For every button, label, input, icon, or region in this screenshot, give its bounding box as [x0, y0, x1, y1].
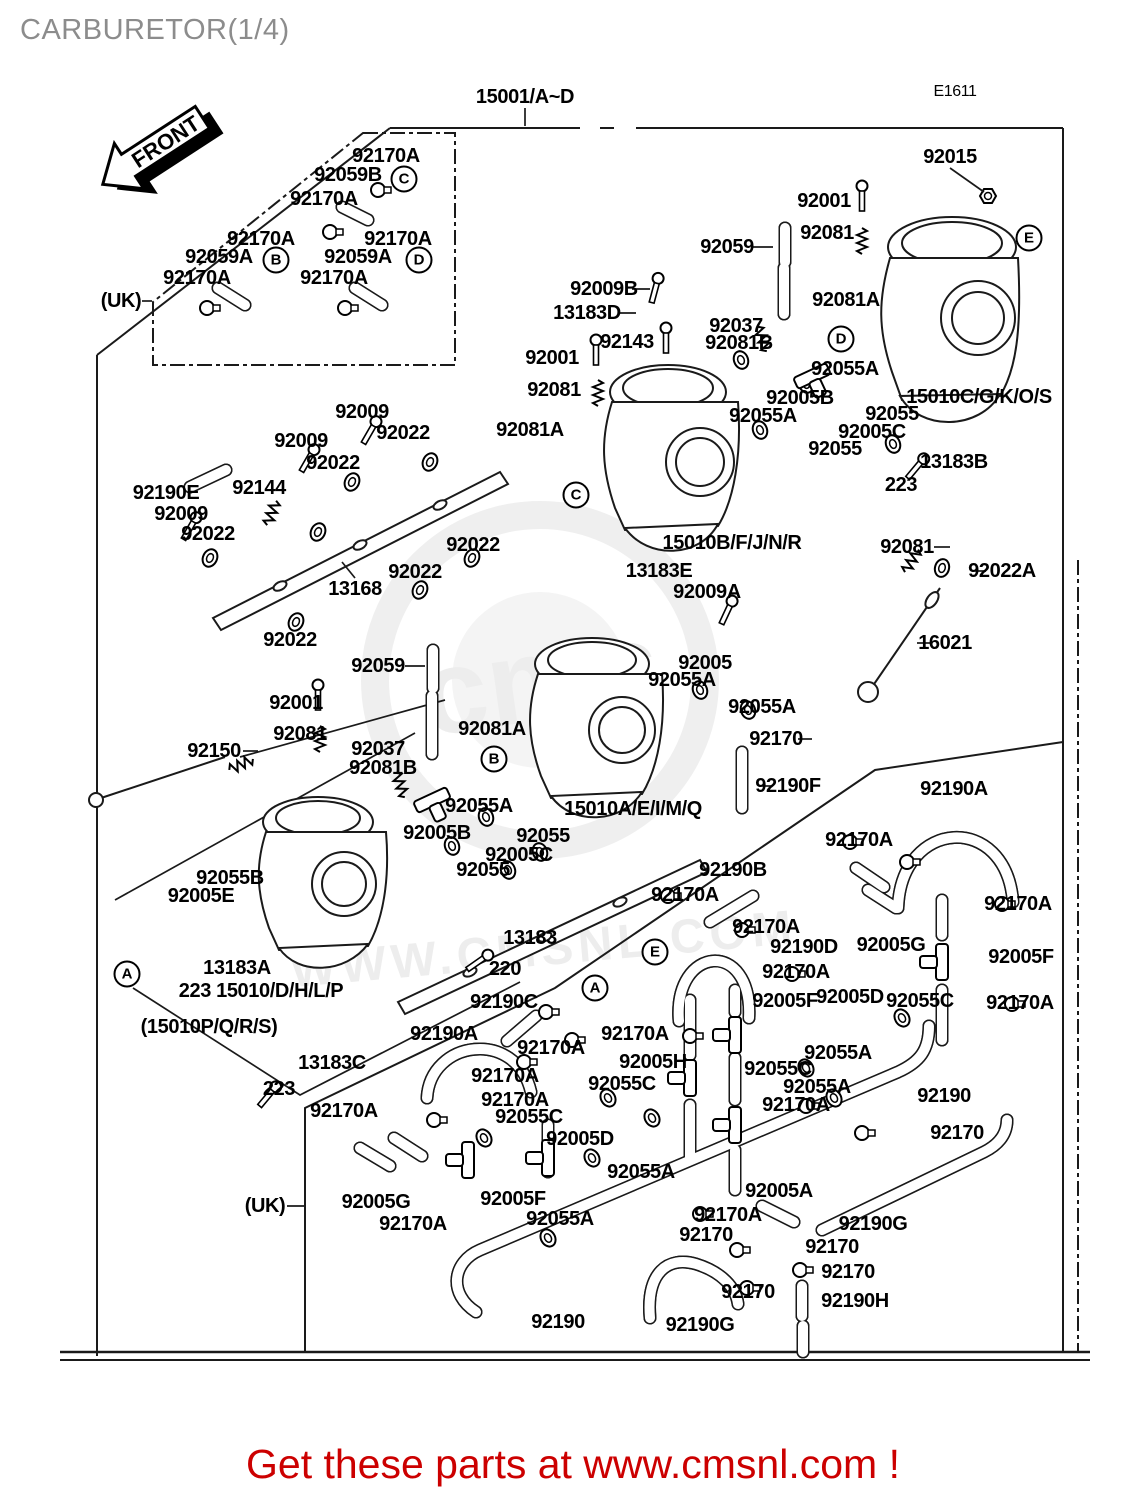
- part-number-label: 13168: [328, 579, 382, 599]
- callout-circle-C: C: [391, 166, 418, 193]
- part-number-label: 92190B: [699, 860, 767, 880]
- part-number-label: 92005H: [619, 1052, 687, 1072]
- part-number-label: 15010C/G/K/O/S: [906, 387, 1052, 407]
- diagram-canvas: cms WWW.CMSNL.COM: [0, 0, 1146, 1500]
- part-number-label: 92059: [700, 237, 754, 257]
- part-number-label: 92022: [388, 562, 442, 582]
- part-number-label: 92081A: [496, 420, 564, 440]
- part-number-label: 92170A: [352, 146, 420, 166]
- part-number-label: 92055C: [886, 991, 954, 1011]
- part-number-label: 92009: [335, 402, 389, 422]
- part-number-label: 13183C: [298, 1053, 366, 1073]
- part-number-label: 92170A: [762, 962, 830, 982]
- part-number-label: 92055C: [495, 1107, 563, 1127]
- part-number-label: 92055: [808, 439, 862, 459]
- part-number-label: 92055A: [804, 1043, 872, 1063]
- callout-circle-A: A: [582, 975, 609, 1002]
- callout-circle-C: C: [563, 482, 590, 509]
- part-number-label: 92170: [721, 1282, 775, 1302]
- part-number-label: 92170A: [984, 894, 1052, 914]
- part-number-label: 92170A: [762, 1095, 830, 1115]
- part-number-label: 92055A: [729, 406, 797, 426]
- part-number-label: 92001: [269, 693, 323, 713]
- part-number-label: 92170A: [732, 917, 800, 937]
- part-number-label: 92055A: [728, 697, 796, 717]
- part-number-label: 92170A: [601, 1024, 669, 1044]
- part-number-label: 92190C: [470, 992, 538, 1012]
- page-root: CARBURETOR(1/4) cms WWW.CMSNL.COM: [0, 0, 1146, 1500]
- part-number-label: 92005D: [816, 987, 884, 1007]
- part-number-label: 92022: [263, 630, 317, 650]
- part-number-label: 92143: [600, 332, 654, 352]
- part-number-label: 92059B: [314, 165, 382, 185]
- part-number-label: 13183D: [553, 303, 621, 323]
- part-number-label: 92190F: [755, 776, 820, 796]
- part-number-label: 92009B: [570, 279, 638, 299]
- callout-circle-B: B: [481, 746, 508, 773]
- part-number-label: 92005F: [752, 991, 817, 1011]
- part-number-label: (15010P/Q/R/S): [141, 1017, 278, 1037]
- part-number-label: 92055A: [811, 359, 879, 379]
- callout-circle-A: A: [114, 961, 141, 988]
- part-number-label: 16021: [918, 633, 972, 653]
- part-number-label: 92009: [274, 431, 328, 451]
- part-number-label: 92190: [531, 1312, 585, 1332]
- part-number-label: 92005G: [857, 935, 926, 955]
- part-number-label: 92150: [187, 741, 241, 761]
- callout-circle-E: E: [1016, 225, 1043, 252]
- part-number-label: 92190D: [770, 937, 838, 957]
- part-number-label: 92170A: [379, 1214, 447, 1234]
- part-number-label: 92055: [456, 860, 510, 880]
- part-number-label: 92055A: [445, 796, 513, 816]
- part-number-label: 92001: [525, 348, 579, 368]
- part-number-label: 92170A: [471, 1066, 539, 1086]
- line-art-svg: cms WWW.CMSNL.COM: [0, 0, 1146, 1500]
- callout-circle-D: D: [406, 247, 433, 274]
- part-number-label: 92170A: [694, 1205, 762, 1225]
- part-number-label: 13183A: [203, 958, 271, 978]
- part-number-label: 92015: [923, 147, 977, 167]
- part-number-label: 220: [489, 959, 521, 979]
- part-number-label: E1611: [933, 84, 976, 100]
- banner-text[interactable]: Get these parts at www.cmsnl.com !: [246, 1441, 900, 1487]
- part-number-label: 92055C: [588, 1074, 656, 1094]
- part-number-label: 13183B: [920, 452, 988, 472]
- part-number-label: 92170: [679, 1225, 733, 1245]
- part-number-label: 92001: [797, 191, 851, 211]
- part-number-label: 92081: [527, 380, 581, 400]
- part-number-label: 92005B: [403, 823, 471, 843]
- promo-banner[interactable]: Get these parts at www.cmsnl.com !: [0, 1441, 1146, 1488]
- part-number-label: 92059: [351, 656, 405, 676]
- part-number-label: 92144: [232, 478, 286, 498]
- carb-body-center: [604, 365, 739, 551]
- part-number-label: 92081: [880, 537, 934, 557]
- part-number-label: 92022A: [968, 561, 1036, 581]
- part-number-label: 92081: [800, 223, 854, 243]
- part-number-label: 92190G: [839, 1214, 908, 1234]
- part-number-label: 92005E: [168, 886, 235, 906]
- part-number-label: 92170A: [290, 189, 358, 209]
- part-number-label: 92005F: [988, 947, 1053, 967]
- part-number-label: 92022: [306, 453, 360, 473]
- carb-body-lower-center: [530, 638, 663, 817]
- part-number-label: 92081: [273, 724, 327, 744]
- front-arrow: FRONT: [88, 91, 232, 217]
- part-number-label: 92009: [154, 504, 208, 524]
- part-number-label: 92170A: [517, 1038, 585, 1058]
- part-number-label: 92005G: [342, 1192, 411, 1212]
- part-number-label: 92059A: [324, 247, 392, 267]
- part-number-label: 223: [263, 1079, 295, 1099]
- part-number-label: 92170A: [310, 1101, 378, 1121]
- part-number-label: 92055A: [607, 1162, 675, 1182]
- part-number-label: 92059A: [185, 247, 253, 267]
- part-number-label: 92005A: [745, 1181, 813, 1201]
- part-number-label: 92170A: [986, 993, 1054, 1013]
- part-number-label: 15010B/F/J/N/R: [663, 533, 802, 553]
- part-number-label: 92005F: [480, 1189, 545, 1209]
- part-number-label: 92055A: [648, 670, 716, 690]
- part-number-label: 92190E: [133, 483, 200, 503]
- part-number-label: 92081B: [349, 758, 417, 778]
- part-number-label: 92190G: [666, 1315, 735, 1335]
- part-number-label: 92037: [351, 739, 405, 759]
- part-number-label: 92190H: [821, 1291, 889, 1311]
- part-number-label: 92081A: [458, 719, 526, 739]
- part-number-label: 92009A: [673, 582, 741, 602]
- part-number-label: 92170: [821, 1262, 875, 1282]
- part-number-label: (UK): [101, 291, 142, 311]
- part-number-label: 92055: [516, 826, 570, 846]
- part-number-label: 15010A/E/I/M/Q: [564, 799, 702, 819]
- part-number-label: 92081B: [705, 333, 773, 353]
- carb-body-left: [259, 797, 387, 968]
- callout-circle-D: D: [828, 326, 855, 353]
- part-number-label: 92170: [930, 1123, 984, 1143]
- part-number-label: 223: [885, 475, 917, 495]
- part-number-label: 13183: [503, 928, 557, 948]
- callout-circle-E: E: [642, 939, 669, 966]
- part-number-label: 92170A: [163, 268, 231, 288]
- part-number-label: 13183E: [626, 561, 693, 581]
- part-number-label: 92190A: [920, 779, 988, 799]
- part-number-label: 92022: [446, 535, 500, 555]
- part-number-label: 92022: [181, 524, 235, 544]
- part-number-label: 92081A: [812, 290, 880, 310]
- part-number-label: 92005D: [546, 1129, 614, 1149]
- part-number-label: 92170A: [651, 885, 719, 905]
- part-number-label: 92190A: [410, 1024, 478, 1044]
- part-number-label: 92170: [805, 1237, 859, 1257]
- part-number-label: 92170A: [300, 268, 368, 288]
- part-number-label: 92170: [749, 729, 803, 749]
- part-number-label: 92022: [376, 423, 430, 443]
- part-number-label: (UK): [245, 1196, 286, 1216]
- part-number-label: 92055A: [526, 1209, 594, 1229]
- part-number-label: 92190: [917, 1086, 971, 1106]
- callout-circle-B: B: [263, 247, 290, 274]
- part-number-label: 223 15010/D/H/L/P: [179, 981, 343, 1001]
- part-number-label: 15001/A~D: [476, 87, 574, 107]
- part-number-label: 92170A: [825, 830, 893, 850]
